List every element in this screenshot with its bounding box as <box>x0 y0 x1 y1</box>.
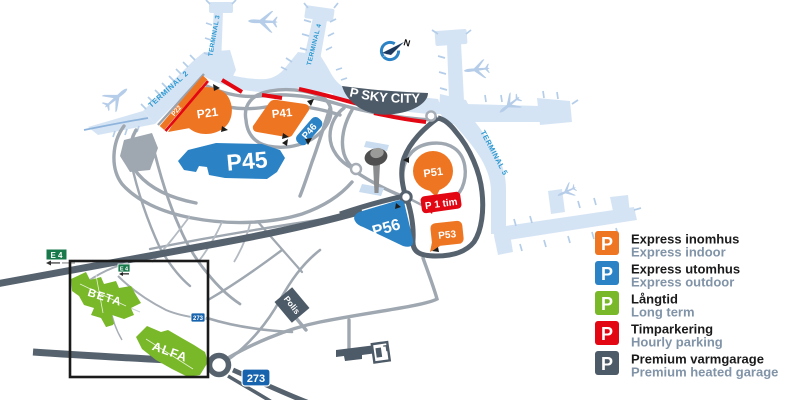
svg-text:P41: P41 <box>271 107 293 121</box>
svg-text:Premium heated garage: Premium heated garage <box>631 365 778 380</box>
svg-text:P21: P21 <box>196 105 219 122</box>
svg-text:Express indoor: Express indoor <box>631 245 726 260</box>
svg-text:273: 273 <box>193 316 204 322</box>
svg-text:P: P <box>601 294 613 314</box>
svg-text:P45: P45 <box>225 146 268 175</box>
svg-text:P: P <box>601 354 613 374</box>
svg-text:P53: P53 <box>438 229 457 242</box>
svg-text:P: P <box>601 324 613 344</box>
svg-text:273: 273 <box>247 373 265 385</box>
svg-text:E 4: E 4 <box>50 251 63 260</box>
svg-text:P: P <box>601 264 613 284</box>
svg-text:Express outdoor: Express outdoor <box>631 275 734 290</box>
svg-text:Hourly parking: Hourly parking <box>631 335 723 350</box>
svg-text:P: P <box>601 234 613 254</box>
svg-text:Long term: Long term <box>631 305 695 320</box>
svg-text:E 4: E 4 <box>120 267 129 273</box>
